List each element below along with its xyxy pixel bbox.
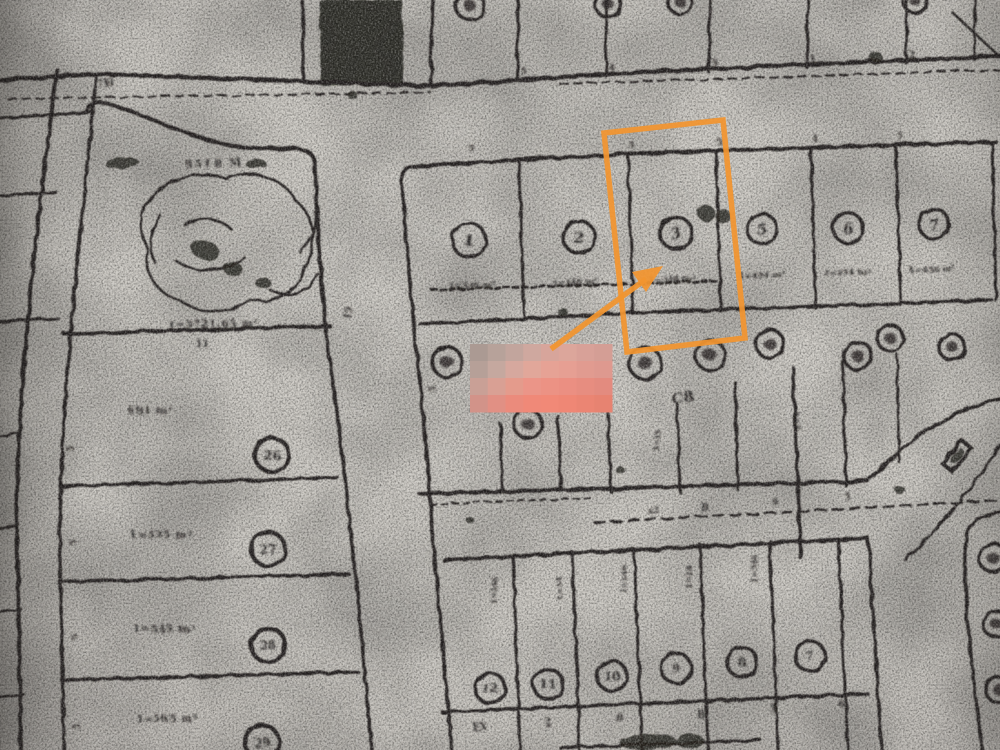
- redaction-mosaic-cell: [594, 378, 612, 396]
- redaction-mosaic-cell: [506, 344, 524, 362]
- map-svg: 12356712111098726691 m²271=535 m²281=545…: [0, 0, 1000, 750]
- redaction-mosaic: [470, 344, 613, 413]
- redaction-mosaic-cell: [559, 344, 577, 362]
- redaction-mosaic-cell: [470, 344, 488, 362]
- redaction-mosaic-cell: [488, 344, 506, 362]
- redaction-mosaic-cell: [470, 361, 488, 379]
- redaction-mosaic-cell: [488, 361, 506, 379]
- redaction-mosaic-cell: [559, 378, 577, 396]
- redaction-mosaic-cell: [523, 378, 541, 396]
- redaction-mosaic-cell: [577, 395, 595, 413]
- redaction-mosaic-cell: [470, 395, 488, 413]
- redaction-mosaic-cell: [488, 378, 506, 396]
- redaction-mosaic-cell: [577, 361, 595, 379]
- redaction-mosaic-cell: [470, 378, 488, 396]
- redaction-mosaic-cell: [541, 395, 559, 413]
- redaction-mosaic-cell: [506, 395, 524, 413]
- redaction-mosaic-cell: [577, 344, 595, 362]
- redaction-mosaic-cell: [506, 378, 524, 396]
- redaction-mosaic-cell: [577, 378, 595, 396]
- redaction-mosaic-cell: [594, 361, 612, 379]
- redaction-mosaic-cell: [594, 344, 612, 362]
- redaction-mosaic-cell: [488, 395, 506, 413]
- scanned-cadastral-map-photo: 12356712111098726691 m²271=535 m²281=545…: [0, 0, 1000, 750]
- redaction-mosaic-cell: [523, 361, 541, 379]
- redaction-mosaic-cell: [541, 378, 559, 396]
- redaction-mosaic-cell: [506, 361, 524, 379]
- redaction-mosaic-cell: [541, 361, 559, 379]
- redaction-mosaic-cell: [523, 395, 541, 413]
- redaction-mosaic-cell: [559, 395, 577, 413]
- redaction-mosaic-cell: [559, 361, 577, 379]
- redaction-mosaic-cell: [594, 395, 612, 413]
- redaction-mosaic-cell: [523, 344, 541, 362]
